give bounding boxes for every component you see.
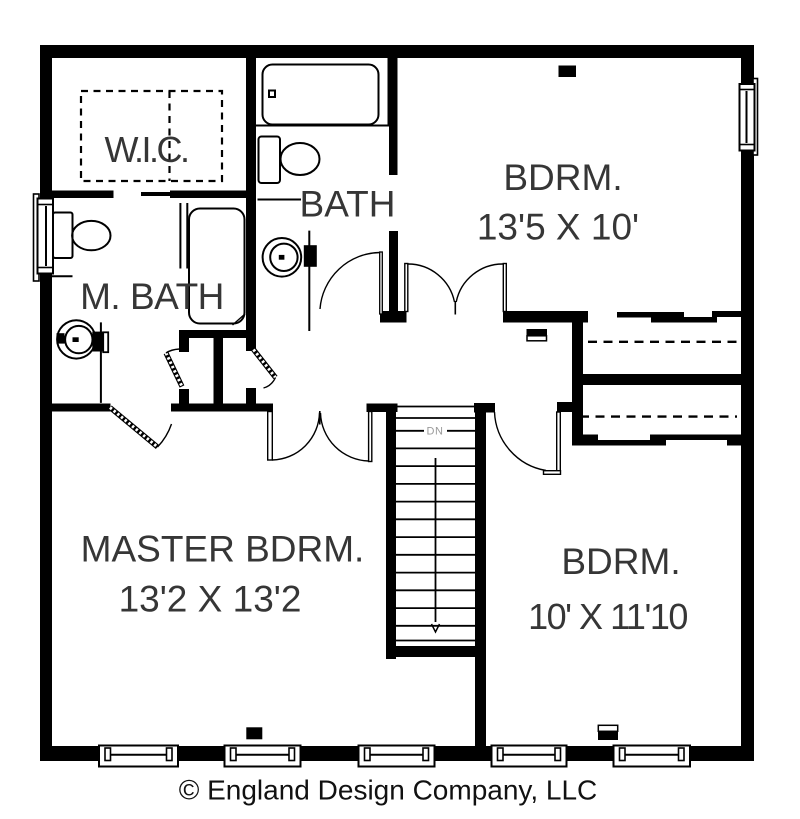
svg-text:W.I.C.: W.I.C. xyxy=(105,129,188,170)
svg-text:13'2 X 13'2: 13'2 X 13'2 xyxy=(119,579,302,620)
svg-text:BDRM.: BDRM. xyxy=(561,541,680,582)
svg-text:M. BATH: M. BATH xyxy=(80,276,224,317)
svg-text:BATH: BATH xyxy=(300,184,396,225)
svg-text:© England Design Company, LLC: © England Design Company, LLC xyxy=(179,775,598,806)
svg-text:MASTER BDRM.: MASTER BDRM. xyxy=(81,529,365,570)
svg-text:BDRM.: BDRM. xyxy=(503,157,622,198)
svg-text:13'5 X 10': 13'5 X 10' xyxy=(477,207,639,248)
svg-text:DN: DN xyxy=(427,426,444,438)
svg-text:10' X 11'10: 10' X 11'10 xyxy=(528,596,687,637)
